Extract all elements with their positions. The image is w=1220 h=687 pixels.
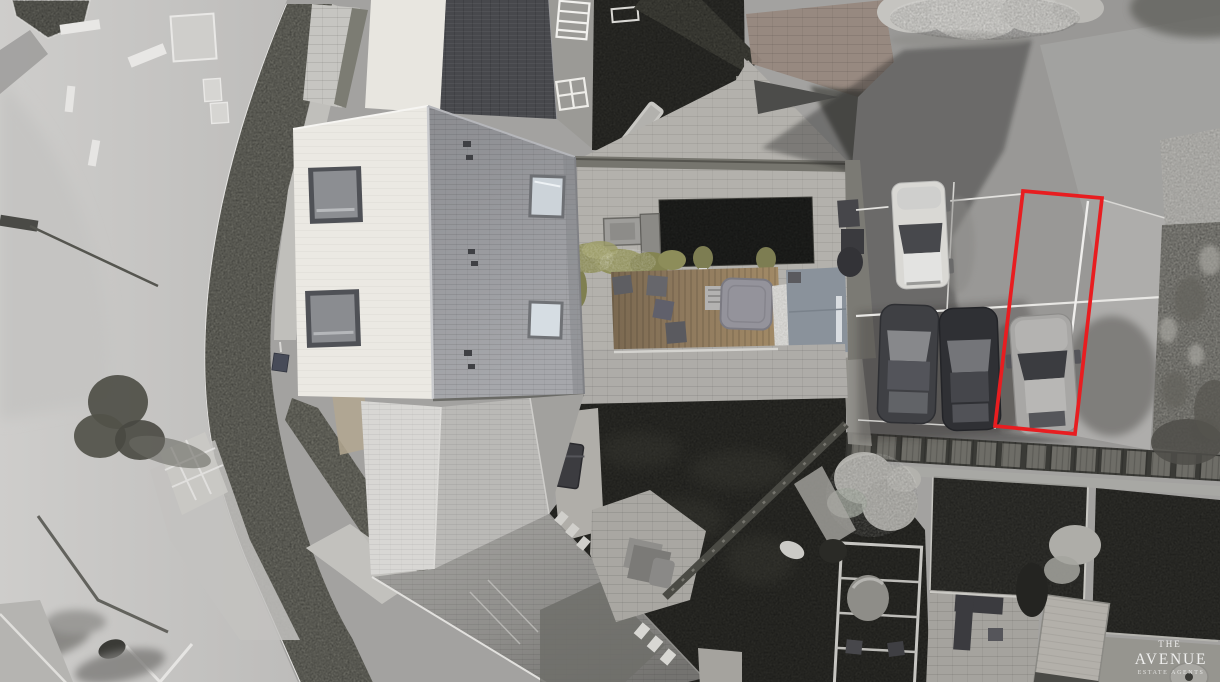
svg-text:ESTATE AGENTS: ESTATE AGENTS	[1138, 670, 1205, 676]
svg-text:THE: THE	[1158, 639, 1182, 649]
svg-text:AVENUE: AVENUE	[1135, 651, 1208, 668]
